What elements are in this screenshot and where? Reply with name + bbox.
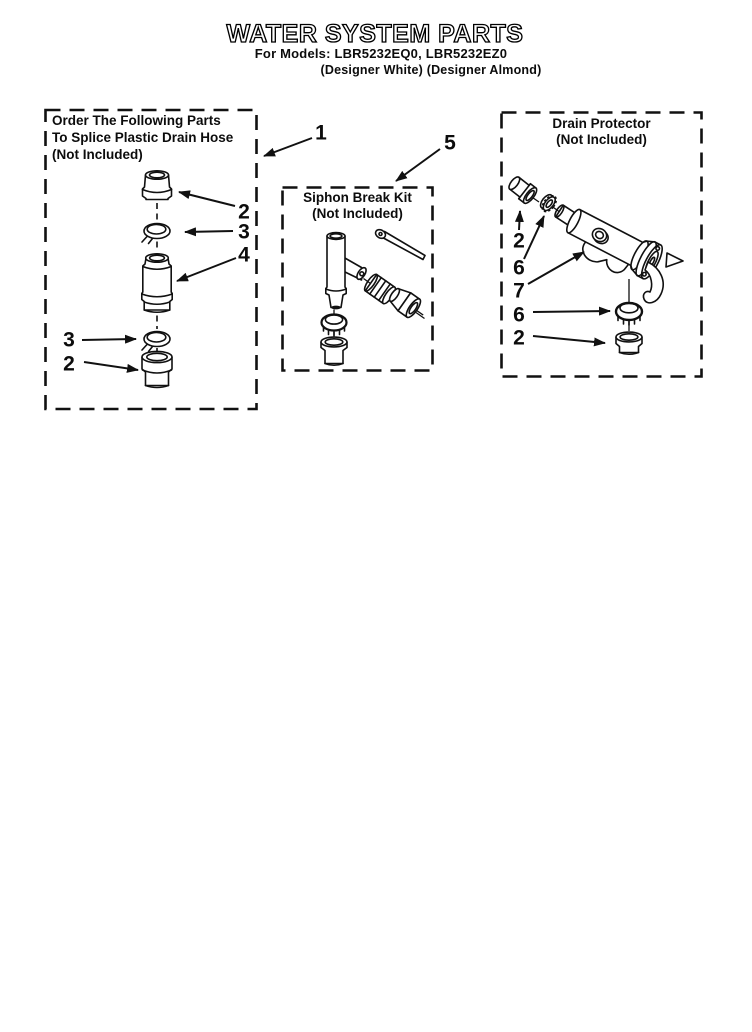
splice-kit-title-line: To Splice Plastic Drain Hose [52, 129, 252, 146]
callout-number-3-bottom: 3 [63, 330, 75, 351]
standpipe-part-drawing [326, 233, 368, 310]
callout-number-4: 4 [238, 245, 250, 266]
color-variants-line: (Designer White) (Designer Almond) [110, 63, 752, 77]
callout-number-7: 7 [513, 281, 525, 302]
callout-arrow-6-outlet [533, 311, 610, 312]
parts-diagram-page: WATER SYSTEM PARTS [0, 0, 752, 1032]
hose-clamp-part-drawing [142, 332, 170, 352]
callout-number-2-bottom: 2 [63, 354, 75, 375]
callout-number-2-inlet: 2 [513, 231, 525, 252]
splice-kit-title-line: Order The Following Parts [52, 112, 252, 129]
callout-number-2-outlet: 2 [513, 328, 525, 349]
siphon-kit-title-line: (Not Included) [282, 206, 433, 222]
outlet-fitting-part-drawing [616, 332, 642, 354]
callout-number-5: 5 [444, 133, 456, 154]
ribbed-clamp-part-drawing [322, 315, 347, 336]
callout-arrow-3-top [185, 231, 233, 232]
callout-arrow-1 [264, 138, 312, 156]
callout-number-6-inlet: 6 [513, 258, 525, 279]
hose-fitting-part-drawing [321, 337, 347, 365]
hose-fitting-part-drawing [143, 171, 172, 200]
callout-arrow-2-outlet [533, 336, 605, 343]
splice-coupler-part-drawing [142, 254, 172, 312]
siphon-kit-box-title: Siphon Break Kit (Not Included) [282, 190, 433, 222]
callout-number-6-outlet: 6 [513, 305, 525, 326]
callout-arrow-3-bottom [82, 339, 136, 340]
callout-arrow-2-bottom [84, 362, 138, 370]
outlet-clamp-part-drawing [616, 303, 642, 325]
splice-kit-title-line: (Not Included) [52, 146, 252, 163]
cable-tie-part-drawing [374, 228, 425, 260]
drain-protector-title-line: (Not Included) [501, 132, 702, 148]
callout-number-3-top: 3 [238, 222, 250, 243]
callout-arrow-2-top [179, 192, 235, 206]
drain-protector-drawing [506, 174, 683, 355]
splice-kit-box-title: Order The Following Parts To Splice Plas… [52, 112, 252, 163]
drain-protector-title-line: Drain Protector [501, 116, 702, 132]
hose-clamp-part-drawing [142, 224, 170, 244]
page-title: WATER SYSTEM PARTS [227, 20, 524, 48]
callout-number-1: 1 [315, 123, 327, 144]
hose-fitting-part-drawing [142, 351, 172, 387]
siphon-kit-title-line: Siphon Break Kit [282, 190, 433, 206]
models-line: For Models: LBR5232EQ0, LBR5232EZ0 [10, 46, 752, 61]
callout-arrow-6-inlet [524, 216, 544, 259]
callout-arrow-2-inlet [519, 211, 520, 230]
callout-number-2-top: 2 [238, 202, 250, 223]
callout-arrow-7 [528, 252, 584, 284]
splice-parts-drawing [142, 171, 172, 388]
inlet-fitting-part-drawing [506, 174, 539, 206]
callout-arrow-5 [396, 149, 440, 181]
callout-arrow-4 [177, 258, 236, 281]
siphon-kit-drawing [321, 228, 430, 365]
drain-protector-box-title: Drain Protector (Not Included) [501, 116, 702, 148]
